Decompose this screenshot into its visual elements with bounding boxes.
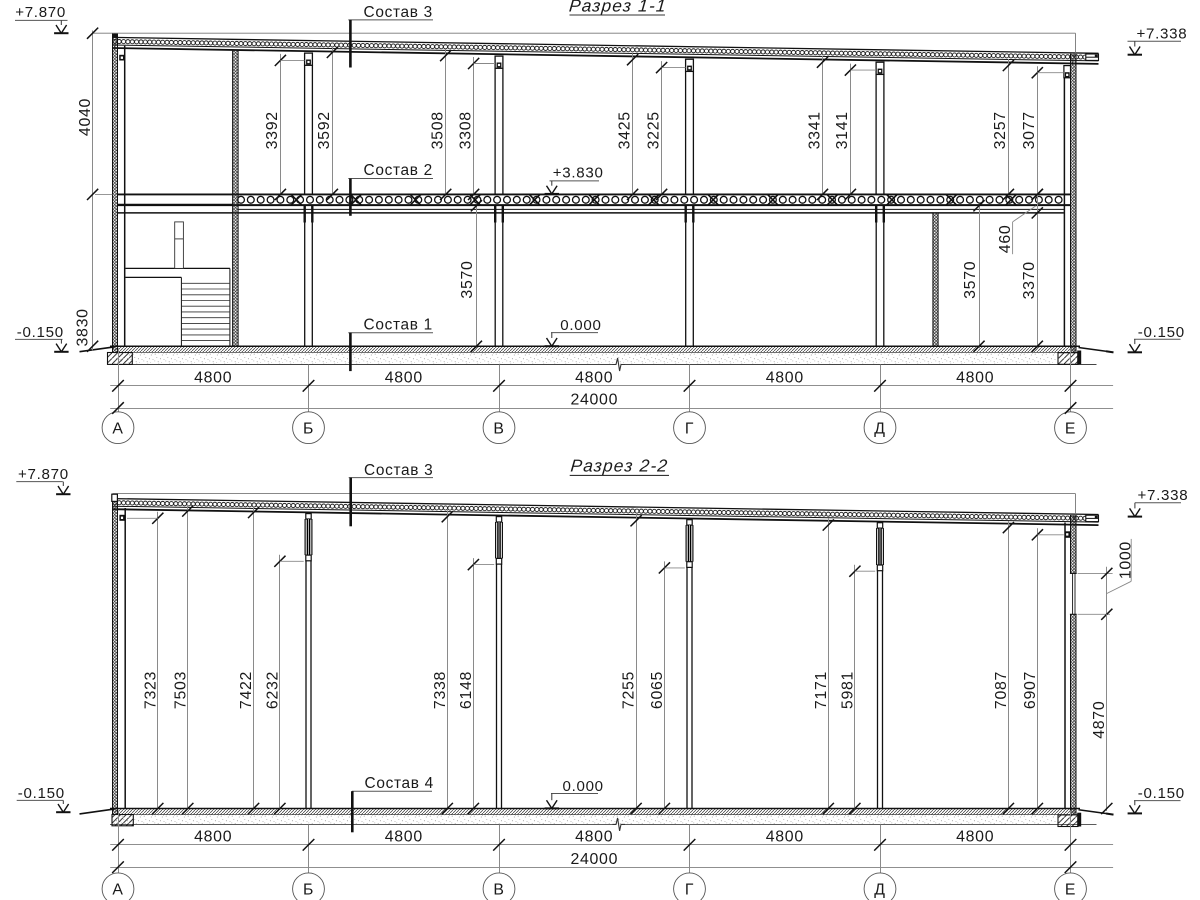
svg-text:4800: 4800 [194, 370, 232, 387]
svg-text:3508: 3508 [430, 111, 447, 149]
svg-text:460: 460 [997, 225, 1014, 254]
svg-text:Состав 3: Состав 3 [364, 462, 433, 479]
svg-text:Б: Б [303, 882, 314, 899]
svg-text:6065: 6065 [649, 671, 666, 709]
svg-text:7255: 7255 [621, 671, 638, 709]
svg-text:Разрез 2-2: Разрез 2-2 [570, 456, 669, 476]
svg-text:Состав 4: Состав 4 [365, 775, 434, 792]
svg-text:7422: 7422 [238, 671, 255, 709]
svg-text:7338: 7338 [432, 671, 449, 709]
svg-text:4870: 4870 [1091, 701, 1108, 739]
svg-text:Б: Б [303, 420, 314, 437]
svg-text:3257: 3257 [992, 111, 1009, 149]
svg-text:Разрез 1-1: Разрез 1-1 [568, 0, 667, 15]
svg-text:Е: Е [1065, 882, 1076, 899]
svg-text:4800: 4800 [194, 829, 232, 846]
svg-text:4800: 4800 [385, 370, 423, 387]
svg-text:6907: 6907 [1022, 671, 1039, 709]
svg-text:1000: 1000 [1118, 541, 1135, 579]
svg-text:5981: 5981 [840, 671, 857, 709]
svg-text:Состав 2: Состав 2 [364, 162, 433, 179]
svg-text:3077: 3077 [1021, 111, 1038, 149]
svg-text:А: А [112, 882, 123, 899]
svg-text:-0.150: -0.150 [18, 785, 65, 802]
svg-text:+7.870: +7.870 [18, 466, 69, 483]
svg-text:Е: Е [1065, 420, 1076, 437]
svg-text:3341: 3341 [806, 111, 823, 149]
svg-text:7323: 7323 [142, 671, 159, 709]
svg-text:4800: 4800 [575, 829, 613, 846]
svg-text:3425: 3425 [616, 111, 633, 149]
svg-text:В: В [493, 882, 504, 899]
svg-text:7503: 7503 [172, 671, 189, 709]
svg-text:3570: 3570 [459, 260, 476, 298]
svg-text:4800: 4800 [575, 370, 613, 387]
svg-text:3570: 3570 [962, 261, 979, 299]
svg-text:+7.870: +7.870 [15, 4, 66, 21]
svg-text:3392: 3392 [264, 111, 281, 149]
svg-text:6232: 6232 [265, 671, 282, 709]
svg-text:Д: Д [874, 882, 885, 899]
svg-text:6148: 6148 [458, 671, 475, 709]
svg-text:+7.338: +7.338 [1138, 487, 1189, 504]
svg-text:4800: 4800 [956, 829, 994, 846]
svg-text:-0.150: -0.150 [17, 324, 64, 341]
svg-text:А: А [112, 420, 123, 437]
svg-text:0.000: 0.000 [563, 778, 604, 795]
svg-text:4800: 4800 [766, 370, 804, 387]
svg-text:Состав 1: Состав 1 [364, 317, 433, 334]
svg-text:В: В [493, 420, 504, 437]
svg-text:-0.150: -0.150 [1138, 785, 1185, 802]
svg-text:4800: 4800 [766, 829, 804, 846]
svg-text:0.000: 0.000 [560, 317, 601, 334]
svg-text:3308: 3308 [457, 111, 474, 149]
svg-text:3225: 3225 [645, 111, 662, 149]
svg-text:-0.150: -0.150 [1138, 324, 1185, 341]
svg-text:4040: 4040 [77, 98, 94, 136]
svg-text:Г: Г [685, 882, 694, 899]
svg-text:7087: 7087 [993, 671, 1010, 709]
svg-text:+3.830: +3.830 [553, 165, 604, 182]
svg-text:7171: 7171 [813, 671, 830, 709]
svg-text:+7.338: +7.338 [1137, 26, 1188, 43]
svg-text:Д: Д [874, 420, 885, 437]
svg-text:4800: 4800 [956, 370, 994, 387]
svg-text:3592: 3592 [316, 111, 333, 149]
svg-text:Г: Г [685, 420, 694, 437]
svg-text:24000: 24000 [570, 392, 618, 409]
svg-text:3370: 3370 [1021, 261, 1038, 299]
svg-text:3141: 3141 [834, 111, 851, 149]
svg-text:4800: 4800 [385, 829, 423, 846]
svg-text:24000: 24000 [570, 851, 618, 868]
svg-text:3830: 3830 [75, 308, 92, 346]
svg-text:Состав 3: Состав 3 [364, 4, 433, 21]
